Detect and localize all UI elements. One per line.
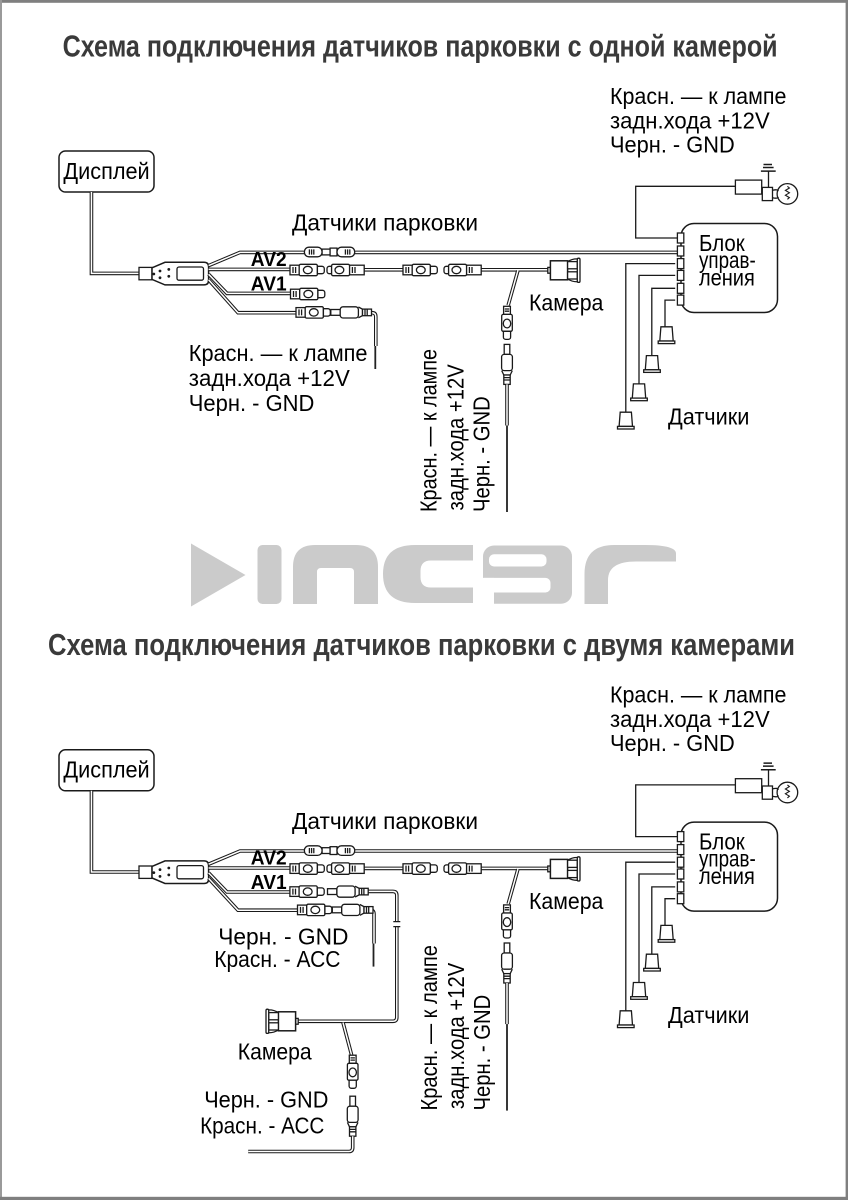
svg-text:Красн. — к лампе: Красн. — к лампе	[189, 340, 368, 366]
svg-text:Дисплей: Дисплей	[63, 757, 149, 783]
svg-text:задн.хода +12V: задн.хода +12V	[610, 706, 770, 732]
svg-text:AV2: AV2	[251, 848, 287, 870]
svg-text:AV1: AV1	[251, 273, 287, 295]
svg-text:задн.хода +12V: задн.хода +12V	[610, 108, 770, 134]
svg-text:Схема подключения датчиков пар: Схема подключения датчиков парковки с дв…	[48, 627, 795, 662]
svg-text:AV2: AV2	[251, 249, 287, 271]
svg-text:задн.хода +12V: задн.хода +12V	[443, 962, 469, 1109]
svg-text:Красн. — к лампе: Красн. — к лампе	[610, 83, 786, 109]
svg-text:задн.хода +12V: задн.хода +12V	[189, 365, 351, 391]
svg-text:Камера: Камера	[238, 1038, 313, 1064]
svg-text:Красн. - АСС: Красн. - АСС	[200, 1113, 324, 1139]
svg-text:ления: ления	[699, 265, 755, 291]
svg-text:Черн. - GND: Черн. - GND	[469, 396, 495, 512]
svg-text:Черн. - GND: Черн. - GND	[469, 995, 495, 1111]
svg-text:Дисплей: Дисплей	[63, 158, 149, 184]
svg-text:Красн. — к лампе: Красн. — к лампе	[610, 682, 786, 708]
svg-text:Датчики: Датчики	[668, 1002, 749, 1028]
svg-text:Черн. - GND: Черн. - GND	[610, 730, 735, 756]
svg-text:Красн. — к лампе: Красн. — к лампе	[416, 349, 442, 512]
svg-text:AV1: AV1	[251, 872, 287, 894]
svg-text:задн.хода +12V: задн.хода +12V	[443, 364, 469, 511]
svg-text:Схема подключения датчиков пар: Схема подключения датчиков парковки с од…	[63, 29, 778, 64]
svg-text:Камера: Камера	[529, 290, 604, 316]
svg-text:Датчики: Датчики	[668, 404, 749, 430]
svg-text:ления: ления	[699, 863, 755, 889]
svg-text:Черн. - GND: Черн. - GND	[204, 1087, 328, 1113]
svg-text:Красн. - АСС: Красн. - АСС	[214, 946, 340, 972]
svg-text:Черн. - GND: Черн. - GND	[189, 390, 315, 416]
svg-text:Красн. — к лампе: Красн. — к лампе	[416, 945, 442, 1110]
svg-text:Камера: Камера	[529, 888, 604, 914]
svg-text:Черн. - GND: Черн. - GND	[610, 131, 735, 157]
svg-text:Датчики парковки: Датчики парковки	[292, 808, 478, 834]
svg-text:Датчики парковки: Датчики парковки	[292, 210, 478, 236]
